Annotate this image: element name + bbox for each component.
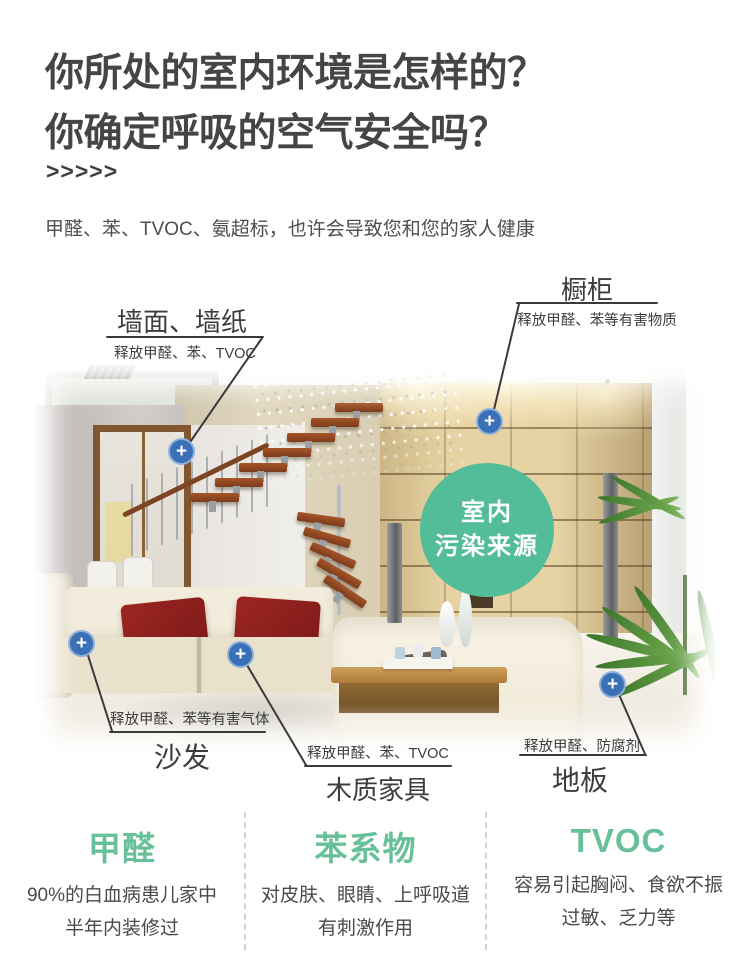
- pollutant-col-benzene: 苯系物 对皮肤、眼睛、上呼吸道 有刺激作用: [244, 812, 485, 950]
- page-title-line1: 你所处的室内环境是怎样的？: [45, 42, 546, 98]
- pollution-source-badge: 室内 污染来源: [420, 463, 554, 597]
- callout-sofa-name: 沙发: [122, 736, 242, 776]
- pollutant-text-line: 有刺激作用: [246, 915, 485, 942]
- pollutant-text-line: 容易引起胸闷、食欲不振: [487, 872, 750, 899]
- chevrons-decoration: >>>>>: [46, 158, 118, 185]
- callout-floor-name: 地板: [510, 759, 650, 799]
- plus-icon: +: [235, 645, 246, 664]
- plus-marker-cabinet: +: [476, 408, 503, 435]
- pollutant-text-line: 半年内装修过: [0, 915, 244, 942]
- pollutant-title: TVOC: [487, 822, 750, 860]
- pollutant-text-line: 90%的白血病患儿家中: [0, 882, 244, 909]
- pollutant-col-tvoc: TVOC 容易引起胸闷、食欲不振 过敏、乏力等: [485, 812, 750, 950]
- callout-cabinet-desc: 释放甲醛、苯等有害物质: [512, 309, 682, 330]
- plus-icon: +: [484, 412, 495, 431]
- pollutant-title: 苯系物: [246, 822, 485, 870]
- photo-edge-fade: [35, 365, 715, 767]
- pollutant-title: 甲醛: [0, 822, 244, 870]
- pollutant-text-line: 过敏、乏力等: [487, 905, 750, 932]
- plus-marker-floor: +: [599, 671, 626, 698]
- pollutant-col-formaldehyde: 甲醛 90%的白血病患儿家中 半年内装修过: [0, 812, 244, 950]
- page-title-line2: 你确定呼吸的空气安全吗？: [45, 102, 507, 158]
- living-room-photo: [35, 365, 715, 767]
- plus-icon: +: [76, 634, 87, 653]
- callout-wall-name: 墙面、墙纸: [92, 302, 272, 339]
- plus-marker-furniture: +: [227, 641, 254, 668]
- poster: 你所处的室内环境是怎样的？ 你确定呼吸的空气安全吗？ >>>>> 甲醛、苯、TV…: [0, 0, 750, 955]
- plus-icon: +: [607, 675, 618, 694]
- plus-marker-wall: +: [168, 438, 195, 465]
- subtitle: 甲醛、苯、TVOC、氨超标，也许会导致您和您的家人健康: [45, 214, 535, 241]
- badge-line1: 室内: [420, 499, 554, 527]
- badge-line2: 污染来源: [420, 533, 554, 561]
- callout-floor-desc: 释放甲醛、防腐剂: [516, 735, 648, 756]
- plus-marker-sofa: +: [68, 630, 95, 657]
- pollutant-text-line: 对皮肤、眼睛、上呼吸道: [246, 882, 485, 909]
- callout-sofa-desc: 释放甲醛、苯等有害气体: [110, 708, 266, 729]
- pollutant-section: 甲醛 90%的白血病患儿家中 半年内装修过 苯系物 对皮肤、眼睛、上呼吸道 有刺…: [0, 812, 750, 950]
- callout-furniture-name: 木质家具: [314, 770, 442, 807]
- callout-cabinet-name: 橱柜: [517, 270, 657, 307]
- callout-furniture-desc: 释放甲醛、苯、TVOC: [305, 742, 451, 763]
- callout-wall-desc: 释放甲醛、苯、TVOC: [107, 342, 263, 363]
- plus-icon: +: [176, 442, 187, 461]
